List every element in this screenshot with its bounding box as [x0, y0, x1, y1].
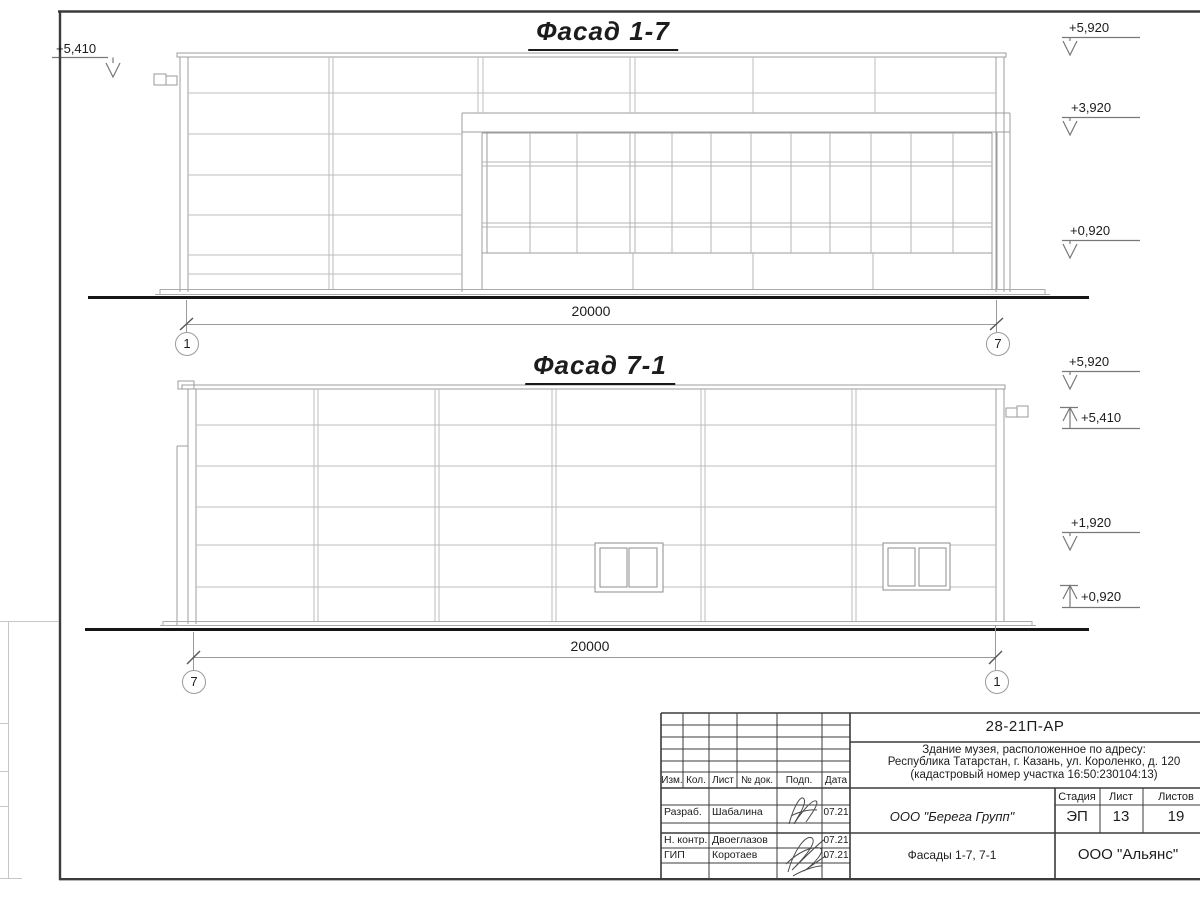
facade-1-7-linework — [154, 53, 1050, 295]
elevation-label: +3,920 — [1071, 101, 1111, 115]
elevation-label: +5,920 — [1069, 355, 1109, 369]
facade-bottom-title: Фасад 7-1 — [525, 351, 675, 385]
stage-value: ЭП — [1066, 809, 1088, 826]
stamp-row-date: 07.21 — [823, 835, 848, 846]
elevation-label: +5,920 — [1069, 21, 1109, 35]
stamp-row-name: Шабалина — [712, 807, 763, 819]
elevation-label: +5,410 — [56, 42, 96, 56]
elevation-label: +0,920 — [1070, 224, 1110, 238]
sheet-title: Фасады 1-7, 7-1 — [908, 849, 997, 862]
col-header-list: Лист — [712, 775, 734, 786]
scupper-left-icon — [154, 74, 177, 85]
stamp-row-role: ГИП — [664, 850, 685, 862]
col-header-podp: Подп. — [786, 775, 813, 786]
project-address-line1: Здание музея, расположенное по адресу: — [922, 744, 1146, 757]
stamp-row-role: Разраб. — [664, 807, 702, 819]
dimension-value: 20000 — [571, 639, 610, 654]
window-2 — [883, 543, 950, 590]
elevation-label: +1,920 — [1071, 516, 1111, 530]
sheet-number: 13 — [1113, 809, 1130, 826]
stage-label: Стадия — [1058, 791, 1096, 803]
stamp-row-role: Н. контр. — [664, 835, 707, 847]
scupper-right-icon — [1006, 406, 1028, 417]
dimension-value: 20000 — [572, 304, 611, 319]
window-1 — [595, 543, 663, 592]
grid-axis-bubble: 1 — [985, 670, 1009, 694]
elevation-label: +5,410 — [1081, 411, 1121, 425]
col-header-kol: Кол. — [686, 775, 706, 786]
doc-number: 28-21П-АР — [986, 719, 1065, 736]
grid-axis-bubble: 1 — [175, 332, 199, 356]
col-header-doc: № док. — [741, 775, 773, 786]
signature-gip — [786, 837, 826, 876]
facade-top-title: Фасад 1-7 — [528, 17, 678, 51]
sheets-total: 19 — [1168, 809, 1185, 826]
contractor-org: ООО "Альянс" — [1078, 847, 1178, 864]
stamp-row-name: Коротаев — [712, 850, 757, 862]
elevation-marks — [52, 38, 1140, 608]
stamp-row-name: Двоеглазов — [712, 835, 768, 847]
project-address-line2: Республика Татарстан, г. Казань, ул. Кор… — [888, 756, 1181, 769]
list-label: Лист — [1109, 791, 1133, 803]
grid-axis-bubble: 7 — [986, 332, 1010, 356]
project-address-line3: (кадастровый номер участка 16:50:230104:… — [910, 769, 1157, 782]
design-company: ООО "Берега Групп" — [890, 810, 1015, 824]
stamp-row-date: 07.21 — [823, 807, 848, 818]
grid-axis-bubble: 7 — [182, 670, 206, 694]
listov-label: Листов — [1158, 791, 1194, 803]
facade-7-1-linework — [160, 381, 1036, 626]
col-header-data: Дата — [825, 775, 847, 786]
signature-razrab — [789, 798, 817, 824]
drawing-sheet: Фасад 1-7 Фасад 7-1 +5,410 +5,920 +3,920… — [0, 0, 1200, 900]
elevation-label: +0,920 — [1081, 590, 1121, 604]
col-header-izm: Изм. — [661, 775, 682, 786]
stamp-row-date: 07.21 — [823, 850, 848, 861]
left-margin-strip — [0, 622, 59, 880]
